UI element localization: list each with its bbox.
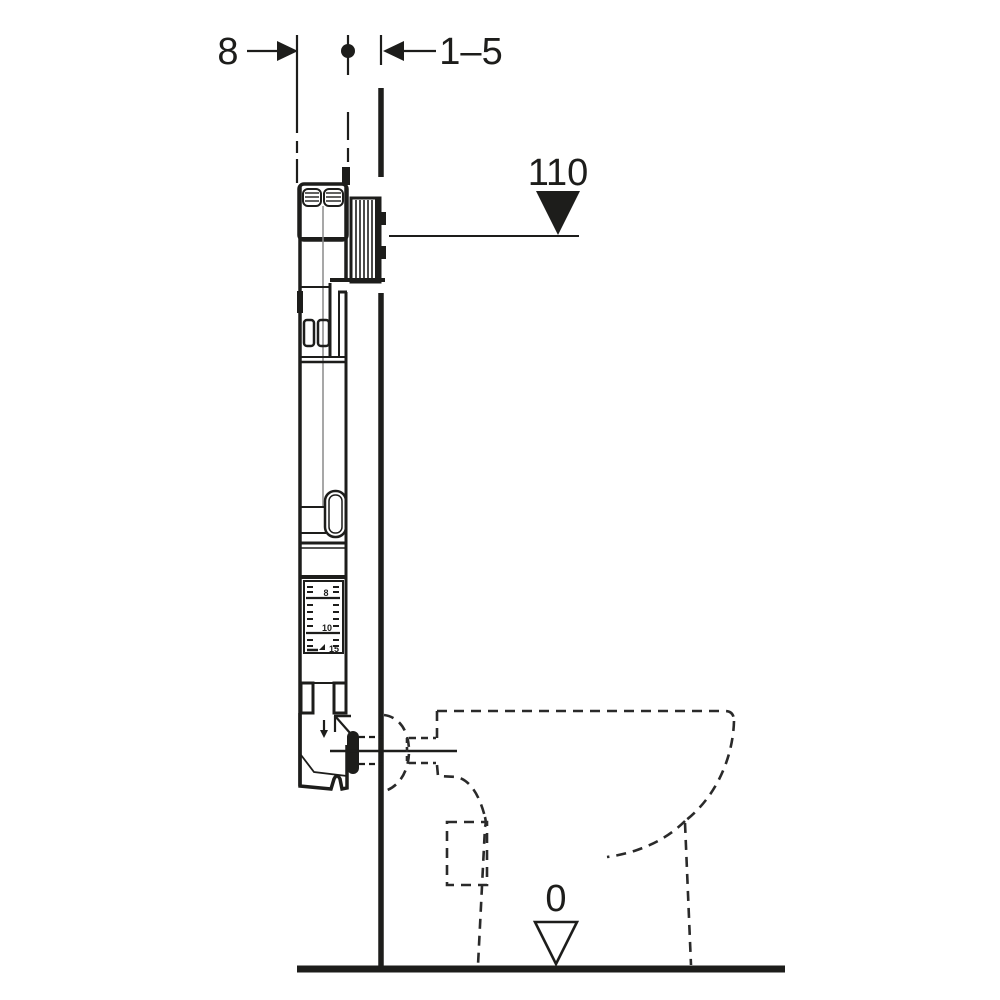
finish-layer-dim-label: 1–5: [439, 31, 502, 73]
ruler-label-8: 8: [323, 588, 328, 598]
flush-outlet-capsule: [325, 491, 346, 537]
boot-bevel-line: [301, 755, 347, 776]
service-cap-right: [324, 189, 343, 206]
arrow-right-icon: [277, 41, 298, 61]
outlet-connector: [347, 731, 359, 774]
service-cap-left: [303, 189, 321, 206]
upper-level-label: 110: [528, 152, 589, 194]
top-dimension-annotations: 8 1–5: [217, 31, 502, 183]
foot-slot-left: [301, 683, 313, 713]
pedestal-back-line: [685, 823, 691, 965]
installation-diagram: 8 1–5 110: [0, 0, 1000, 1000]
boot-corner-diagonal: [335, 716, 350, 733]
frame-feet-slots: [300, 683, 347, 713]
cistern-frame: 8 10 15: [297, 167, 457, 789]
bracket-section: [297, 283, 347, 362]
ruler-label-15: 15: [329, 644, 339, 654]
box-tab-upper: [380, 212, 386, 225]
toilet-top-line: [437, 711, 734, 721]
arrow-left-icon: [383, 41, 404, 61]
ruler-arrow-icon: [319, 644, 325, 650]
protection-box-hatching: [356, 200, 372, 280]
foot-slot-right: [334, 683, 346, 713]
floor-level-label: 0: [545, 878, 566, 920]
filled-triangle-level-icon: [536, 191, 580, 235]
reference-dot-icon: [341, 44, 355, 58]
diagram-canvas: 8 1–5 110: [0, 0, 1000, 1000]
clip-left: [304, 320, 314, 346]
top-fixing-tab: [342, 167, 350, 185]
supply-box-outline: [447, 822, 487, 885]
upper-level-marker: 110: [389, 152, 588, 236]
ruler-label-10: 10: [322, 623, 332, 633]
bowl-underside-curve: [607, 821, 685, 857]
cistern-top-section: [299, 167, 350, 507]
box-tab-lower: [380, 246, 386, 259]
bowl-back-curve: [685, 721, 734, 821]
wall-thickness-dim-label: 8: [217, 31, 238, 73]
flush-outlet-inner: [329, 495, 342, 533]
depth-ruler: 8 10 15: [304, 581, 343, 654]
floor-level-marker: 0: [535, 878, 577, 964]
bracket-black-bar: [297, 291, 303, 313]
bolt-arrow-icon: [320, 730, 328, 738]
pedestal-front-line: [478, 817, 486, 965]
toilet-back-step: [437, 765, 485, 817]
spigot-socket-bell: [384, 715, 409, 791]
open-triangle-level-icon: [535, 922, 577, 964]
